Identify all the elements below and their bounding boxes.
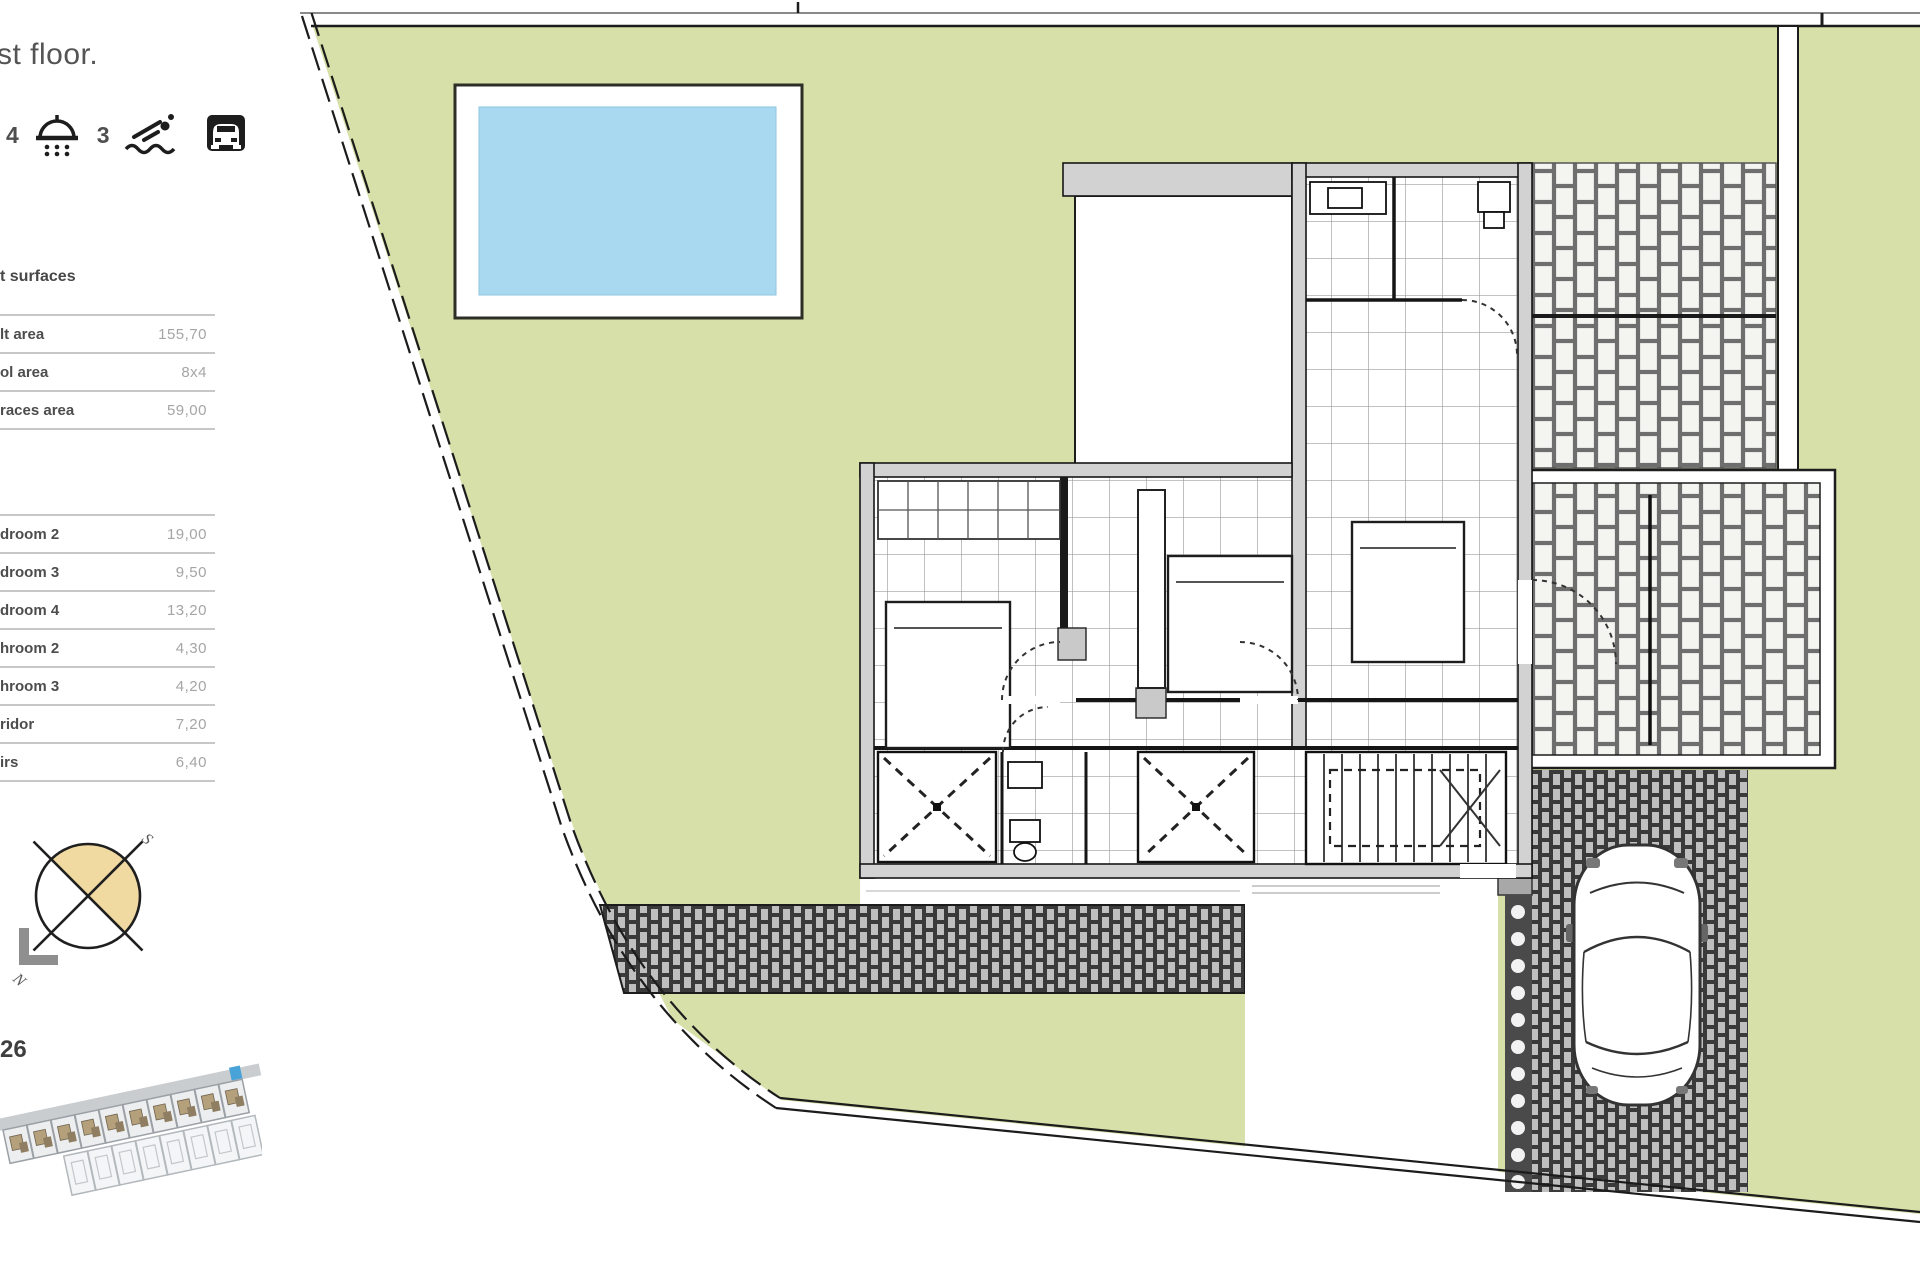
- row-value: 155,70: [158, 326, 215, 343]
- car: [1566, 845, 1708, 1105]
- row-label: ol area: [0, 364, 48, 381]
- page-title: st floor.: [0, 38, 98, 72]
- shower-icon: [31, 107, 83, 164]
- table-row: droom 4 13,20: [0, 592, 215, 628]
- compass-north-label: N: [9, 970, 30, 991]
- table-row: hroom 2 4,30: [0, 630, 215, 666]
- table-row: hroom 3 4,20: [0, 668, 215, 704]
- site-boundary-top: [300, 2, 1920, 27]
- driveway: [1498, 770, 1748, 1192]
- site-plan: S N: [0, 0, 1920, 1280]
- garage-icon: [206, 112, 246, 159]
- row-label: races area: [0, 402, 74, 419]
- table-row: droom 2 19,00: [0, 516, 215, 552]
- row-label: lt area: [0, 326, 44, 343]
- bath-count: 4: [6, 122, 19, 149]
- wardrobe: [878, 481, 1060, 539]
- compass-south-label: S: [138, 830, 155, 848]
- row-value: 4,20: [176, 678, 215, 695]
- terrace-upper: [1532, 163, 1776, 468]
- compass: S N: [9, 830, 156, 991]
- table-row: ridor 7,20: [0, 706, 215, 742]
- extra-count: 3: [97, 122, 110, 149]
- table-row: races area 59,00: [0, 392, 215, 428]
- swimming-pool: [455, 85, 802, 318]
- wall-pier: [1136, 688, 1166, 718]
- floor-plan-page: S N: [0, 0, 1920, 1280]
- row-label: droom 4: [0, 602, 59, 619]
- table-row: irs 6,40: [0, 744, 215, 780]
- swimmer-icon: [122, 109, 178, 162]
- row-label: ridor: [0, 716, 34, 733]
- row-value: 4,30: [176, 640, 215, 657]
- surfaces-heading: t surfaces: [0, 268, 76, 286]
- row-value: 6,40: [176, 754, 215, 771]
- pool-water: [479, 107, 776, 295]
- surfaces-table: lt area 155,70 ol area 8x4 races area 59…: [0, 314, 215, 782]
- row-value: 8x4: [181, 364, 215, 381]
- lot-number: 26: [0, 1036, 27, 1064]
- terrace-lower: [1513, 470, 1835, 768]
- row-value: 7,20: [176, 716, 215, 733]
- boundary-path-strip: [1778, 27, 1798, 470]
- wall-pier: [1058, 628, 1086, 660]
- entry-court: [1245, 878, 1498, 1192]
- row-label: hroom 3: [0, 678, 59, 695]
- balcony: [1075, 196, 1292, 465]
- row-label: hroom 2: [0, 640, 59, 657]
- table-row: ol area 8x4: [0, 354, 215, 390]
- stairs: [1306, 752, 1506, 864]
- amenities-row: 4 3: [0, 108, 246, 162]
- row-value: 13,20: [167, 602, 215, 619]
- row-label: irs: [0, 754, 18, 771]
- row-label: droom 3: [0, 564, 59, 581]
- table-row: droom 3 9,50: [0, 554, 215, 590]
- row-value: 19,00: [167, 526, 215, 543]
- row-value: 9,50: [176, 564, 215, 581]
- locator-map: [0, 1062, 277, 1214]
- row-value: 59,00: [167, 402, 215, 419]
- cupboard: [1138, 490, 1165, 688]
- row-label: droom 2: [0, 526, 59, 543]
- table-row: lt area 155,70: [0, 316, 215, 352]
